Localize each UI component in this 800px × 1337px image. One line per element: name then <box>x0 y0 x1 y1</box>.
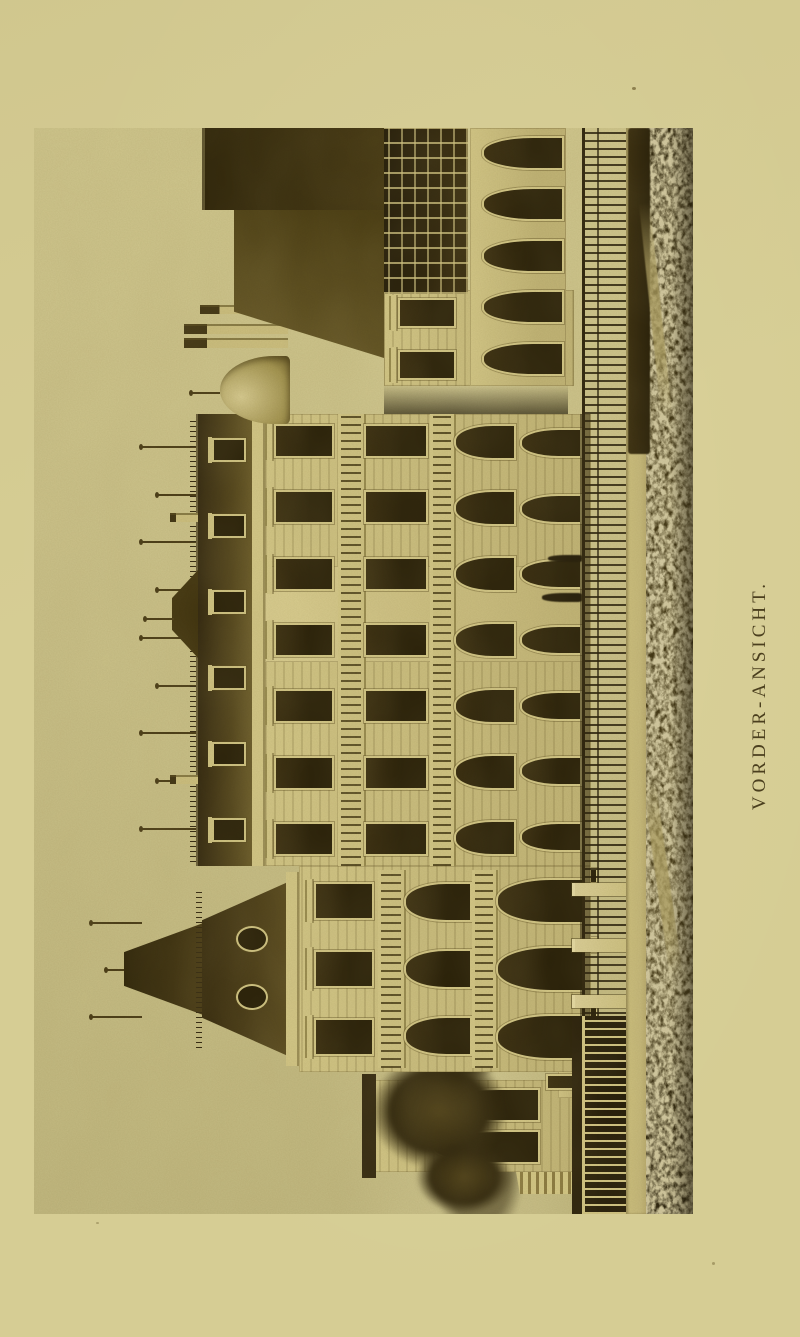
window <box>404 1016 472 1056</box>
window <box>274 557 334 591</box>
window <box>274 756 334 790</box>
window <box>142 733 196 735</box>
window <box>236 926 268 952</box>
tower-upper-windows <box>314 882 372 1056</box>
window <box>364 822 428 856</box>
chimney <box>170 513 198 522</box>
window <box>482 239 564 273</box>
window <box>482 188 564 222</box>
window <box>212 514 246 538</box>
window <box>496 878 584 924</box>
window <box>454 490 516 526</box>
tower-ground-arcade <box>496 878 582 1060</box>
window <box>142 542 196 544</box>
window <box>364 424 428 458</box>
window <box>454 556 516 592</box>
recess-shadow <box>384 384 568 414</box>
window <box>274 689 334 723</box>
window <box>314 1018 374 1056</box>
center-balustrade-1 <box>338 414 364 866</box>
right-arcade-arches <box>482 136 562 376</box>
window <box>146 618 174 620</box>
chimney <box>170 775 198 784</box>
window <box>404 949 472 989</box>
tower-cornice <box>286 872 299 1066</box>
center-cornice <box>252 414 265 866</box>
window <box>212 818 246 842</box>
window <box>454 754 516 790</box>
tower-main-windows <box>404 882 470 1056</box>
window <box>520 691 582 721</box>
tall-chimney <box>184 338 288 348</box>
window <box>274 623 334 657</box>
window <box>454 622 516 658</box>
tree <box>416 1140 512 1214</box>
center-upper-windows <box>274 424 334 856</box>
window <box>212 590 246 614</box>
central-finial <box>146 608 174 620</box>
window <box>212 666 246 690</box>
window <box>274 490 334 524</box>
window <box>212 438 246 462</box>
photo-scene <box>34 128 693 1214</box>
lawn-bottom-shadow <box>670 128 693 1214</box>
window <box>92 922 142 924</box>
window <box>520 494 582 524</box>
gate-pier <box>572 883 628 896</box>
window <box>236 984 268 1010</box>
tall-chimney <box>184 324 288 334</box>
window <box>142 446 196 448</box>
window <box>454 424 516 460</box>
window <box>274 822 334 856</box>
window <box>454 688 516 724</box>
window <box>520 822 582 852</box>
center-balustrade-2 <box>430 414 454 866</box>
center-gallery-arches <box>454 424 514 856</box>
tower-cresting <box>196 890 202 1048</box>
window <box>314 882 374 920</box>
book-page: VORDER-ANSICHT. <box>0 0 800 1337</box>
tower-balustrade-2 <box>472 870 496 1068</box>
window <box>520 756 582 786</box>
window <box>482 136 564 170</box>
window <box>398 298 456 328</box>
tower-balustrade-1 <box>378 870 404 1068</box>
window <box>520 559 582 589</box>
window <box>398 350 456 380</box>
window <box>482 342 564 376</box>
photograph-plate <box>34 128 693 1214</box>
right-wing-windows <box>398 298 456 380</box>
paper-speck <box>712 1262 715 1265</box>
window <box>364 557 428 591</box>
window <box>142 828 196 830</box>
gate-pier <box>572 995 628 1008</box>
window <box>212 742 246 766</box>
window <box>364 623 428 657</box>
winter-garden-glazing <box>384 128 468 294</box>
caption-text: VORDER-ANSICHT. <box>749 580 771 810</box>
paper-speck <box>96 1222 99 1224</box>
paper-speck <box>632 87 636 90</box>
roof-dormers <box>212 438 246 842</box>
statue <box>542 593 582 602</box>
window <box>482 291 564 325</box>
window <box>314 950 374 988</box>
window <box>496 1014 584 1060</box>
window <box>364 756 428 790</box>
window <box>520 428 582 458</box>
window <box>520 625 582 655</box>
hedge-band <box>628 128 650 454</box>
iron-fence-sunlit <box>582 1016 629 1214</box>
turret-finial <box>192 386 220 394</box>
center-main-windows <box>364 424 426 856</box>
gate-pier <box>572 939 628 952</box>
window <box>92 1016 142 1018</box>
tower-dormers <box>236 926 266 1010</box>
window <box>454 820 516 856</box>
window <box>404 882 472 922</box>
center-ground-arcade <box>520 428 580 852</box>
window <box>274 424 334 458</box>
right-pavilion-roof <box>202 128 386 210</box>
statue <box>548 555 582 562</box>
window <box>192 392 220 394</box>
window <box>364 689 428 723</box>
window <box>496 946 584 992</box>
window <box>364 490 428 524</box>
